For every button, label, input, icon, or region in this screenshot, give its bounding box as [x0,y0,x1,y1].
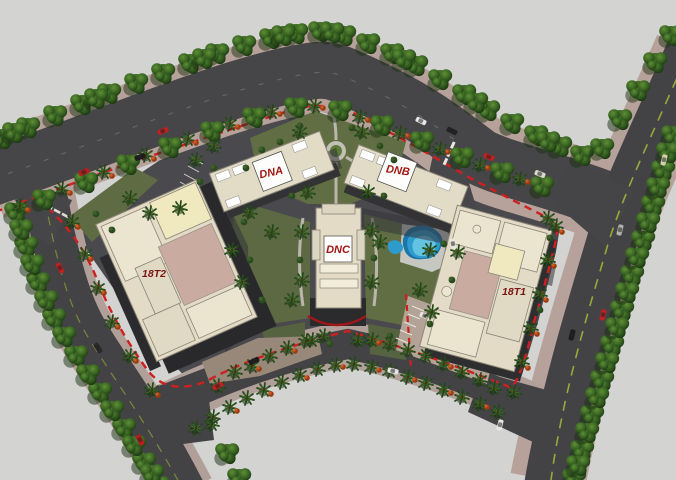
svg-text:DNC: DNC [326,244,351,256]
svg-text:18T1: 18T1 [502,286,526,298]
svg-text:18T2: 18T2 [142,268,166,280]
